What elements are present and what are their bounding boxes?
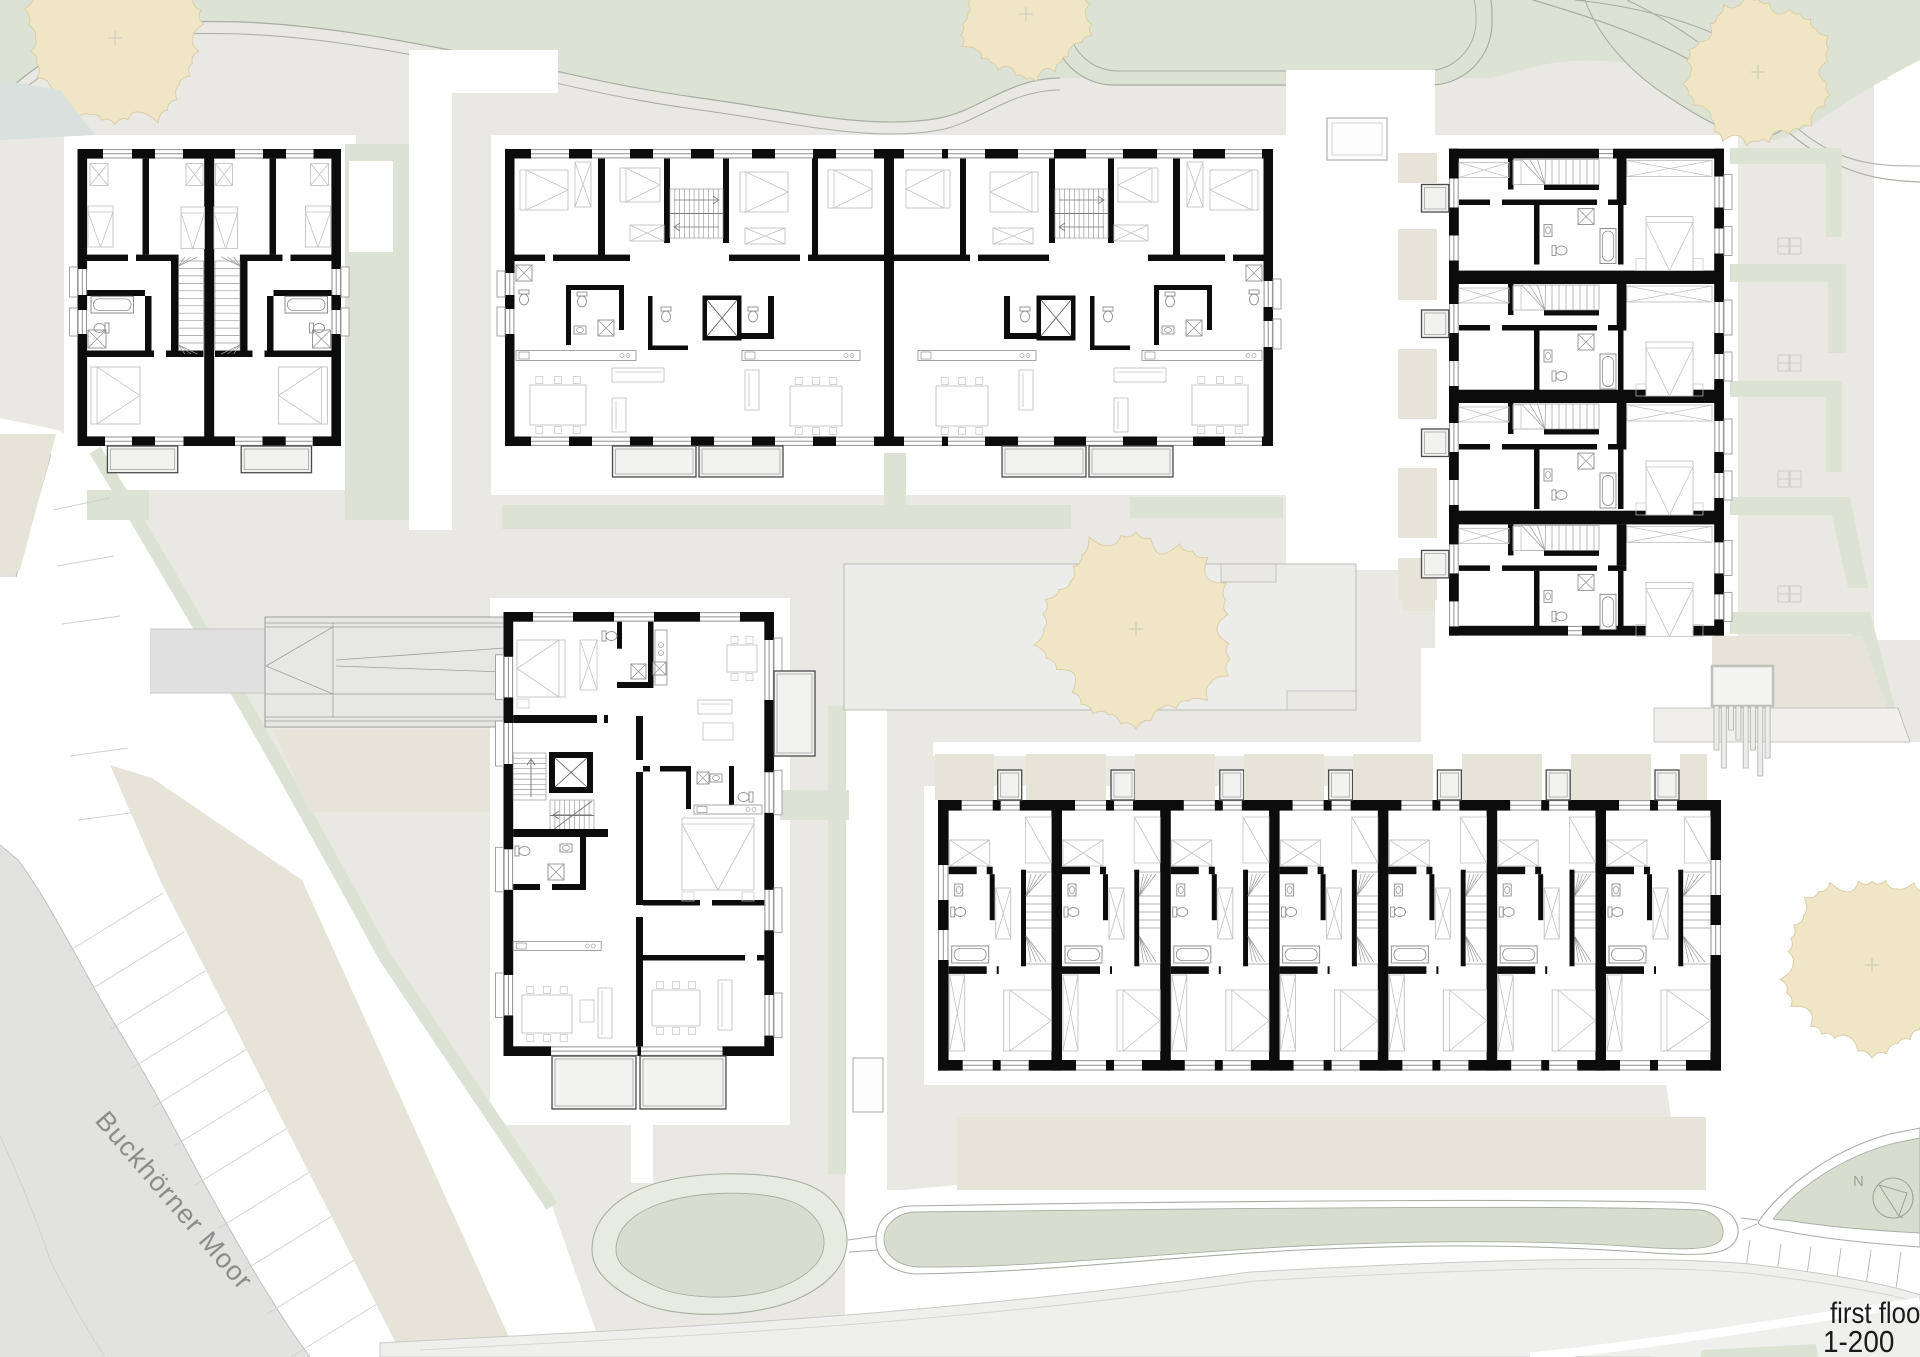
svg-text:1-200: 1-200 [1823, 1325, 1894, 1357]
svg-text:N: N [1853, 1173, 1864, 1190]
